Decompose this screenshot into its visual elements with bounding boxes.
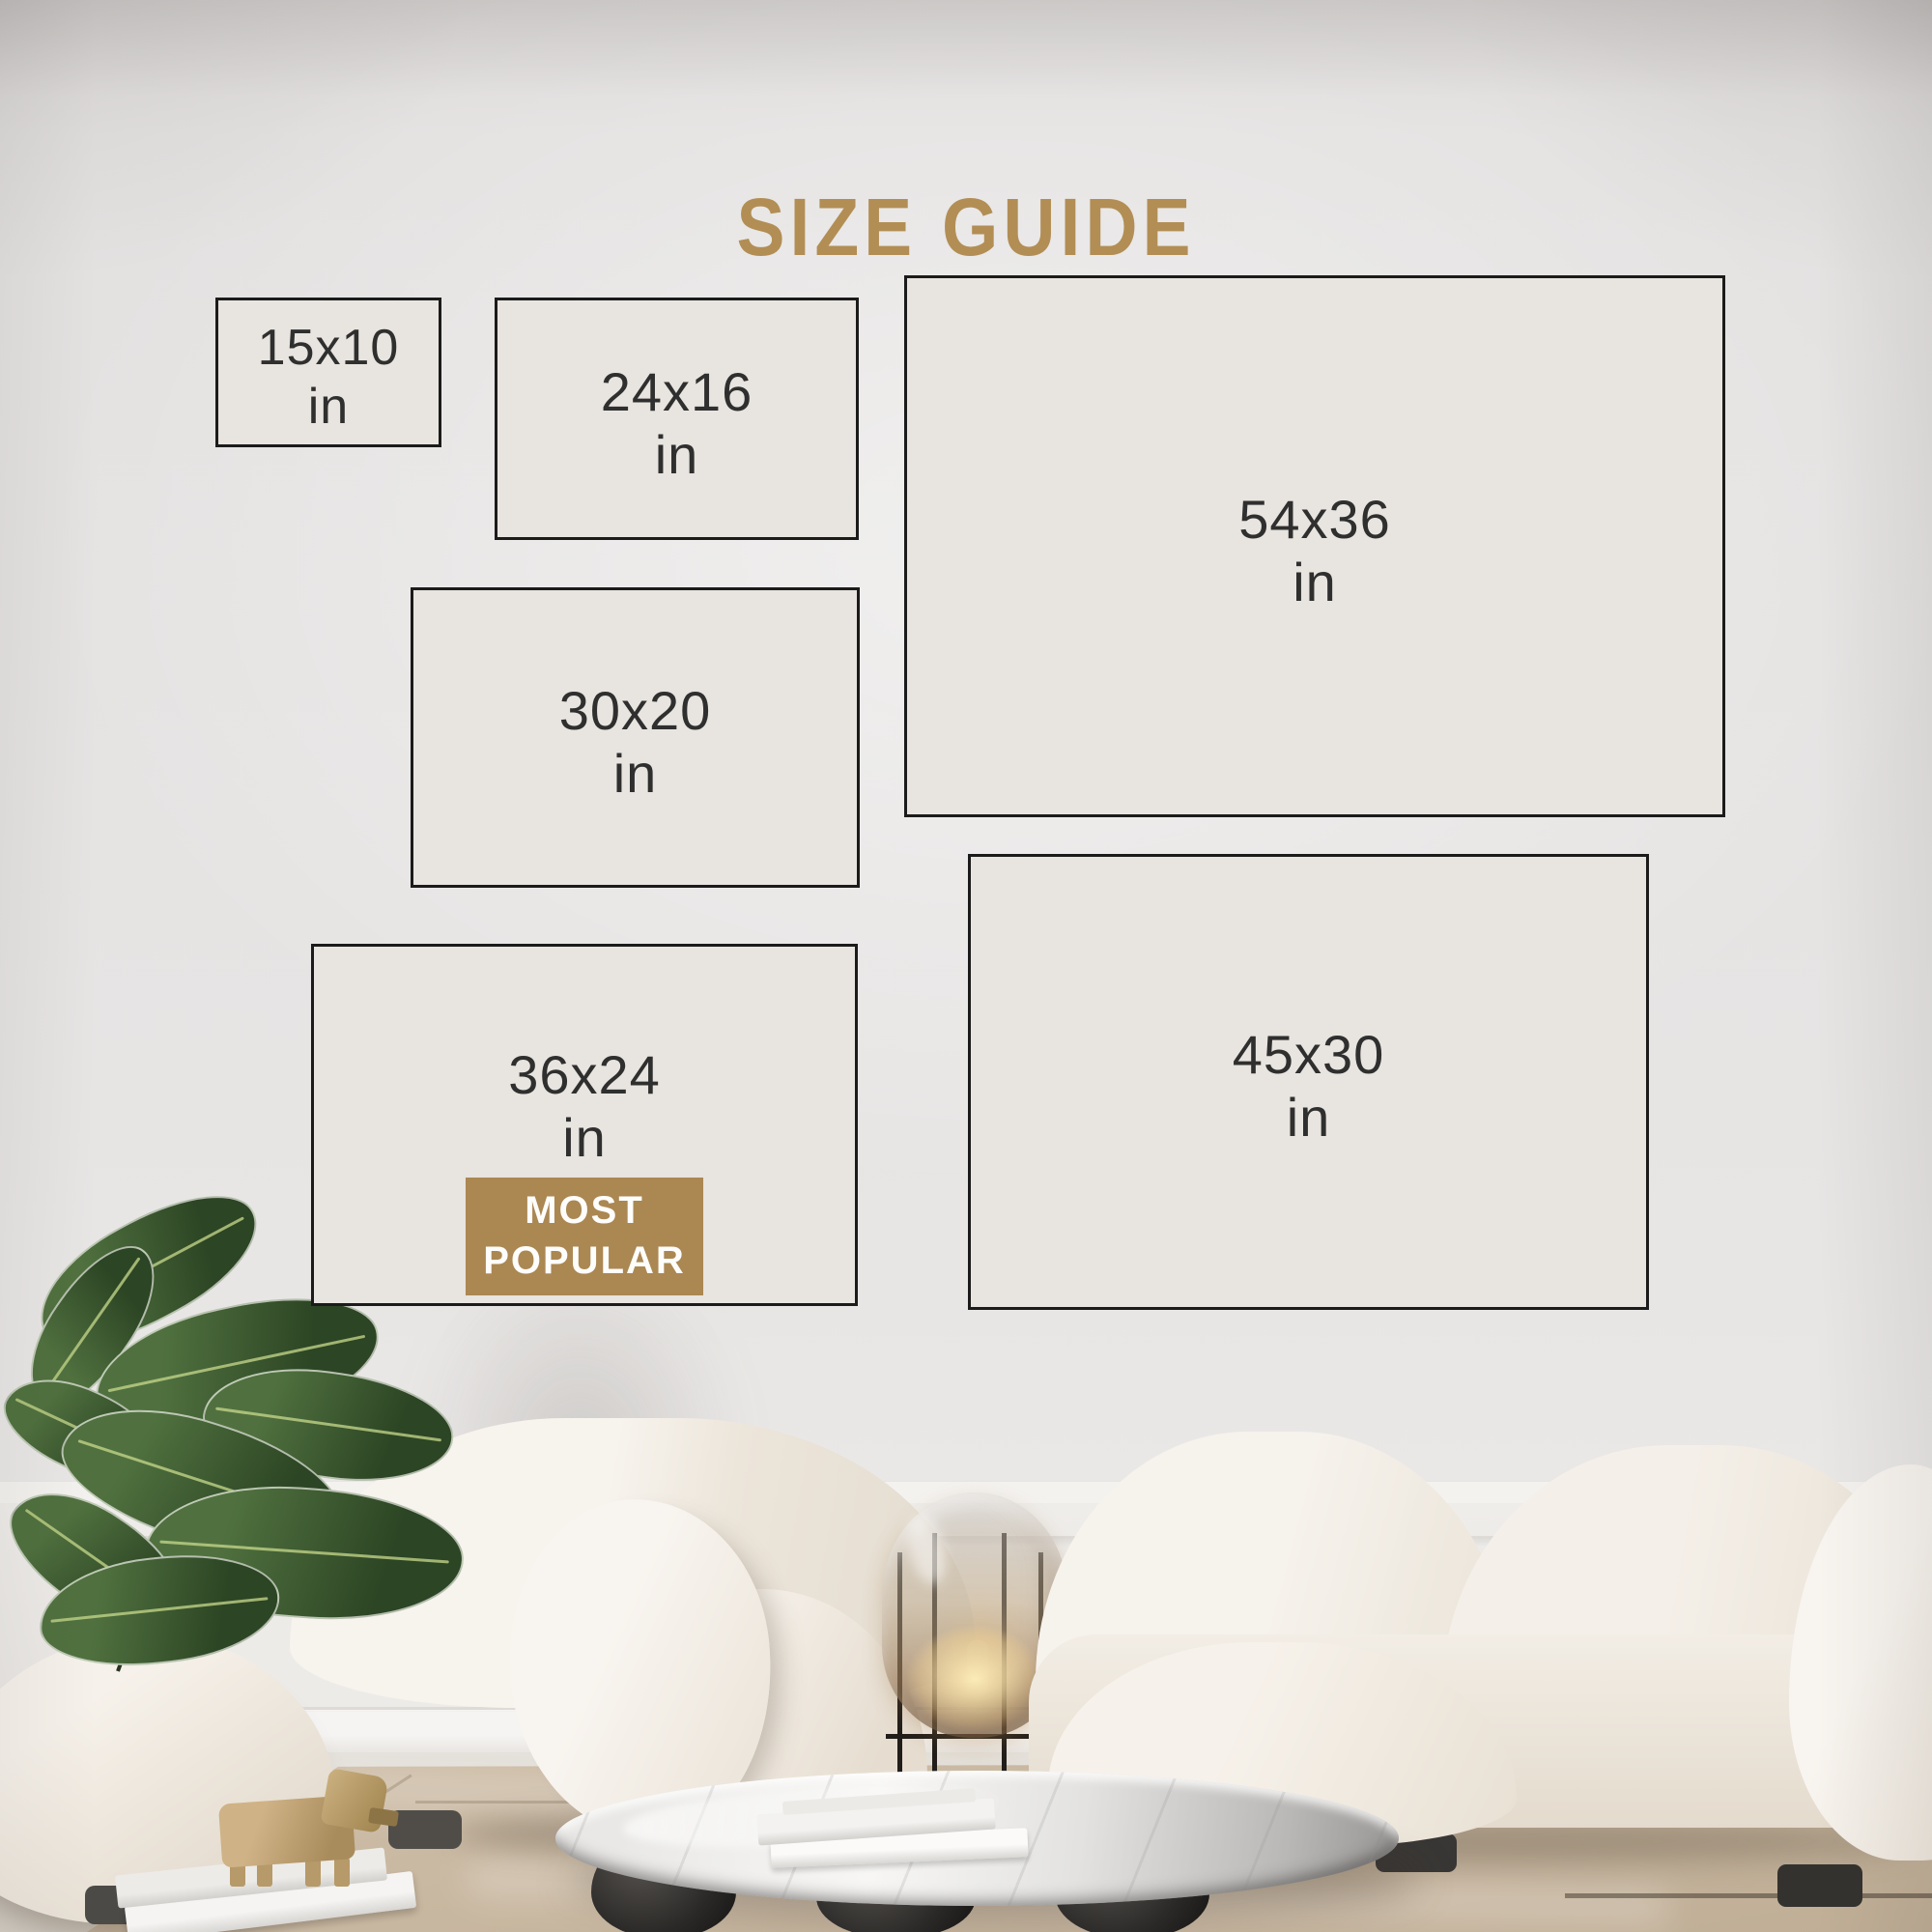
badge-line2: POPULAR [483, 1236, 686, 1286]
size-guide-scene: SIZE GUIDE 15x10 in 24x16 in 54x36 in 30… [0, 0, 1932, 1932]
size-box-30x20: 30x20 in [411, 587, 860, 888]
size-box-24x16: 24x16 in [495, 298, 859, 540]
size-unit: in [1293, 552, 1337, 614]
size-label: 24x16 [601, 361, 753, 424]
size-label: 30x20 [559, 680, 712, 743]
size-unit: in [308, 378, 349, 436]
size-unit: in [1287, 1087, 1331, 1150]
size-box-36x24: 36x24 in MOST POPULAR [311, 944, 858, 1306]
most-popular-badge: MOST POPULAR [466, 1178, 703, 1295]
size-label: 45x30 [1233, 1024, 1385, 1087]
size-box-15x10: 15x10 in [215, 298, 441, 447]
size-box-54x36: 54x36 in [904, 275, 1725, 817]
size-label: 36x24 [508, 1044, 661, 1107]
badge-line1: MOST [483, 1185, 686, 1236]
size-guide-overlay: SIZE GUIDE 15x10 in 24x16 in 54x36 in 30… [0, 0, 1932, 1932]
size-unit: in [613, 743, 658, 806]
size-unit: in [562, 1107, 607, 1170]
size-label: 54x36 [1238, 489, 1391, 552]
size-box-45x30: 45x30 in [968, 854, 1649, 1310]
size-unit: in [655, 424, 699, 487]
size-label: 15x10 [258, 319, 400, 377]
page-title: SIZE GUIDE [0, 174, 1932, 280]
